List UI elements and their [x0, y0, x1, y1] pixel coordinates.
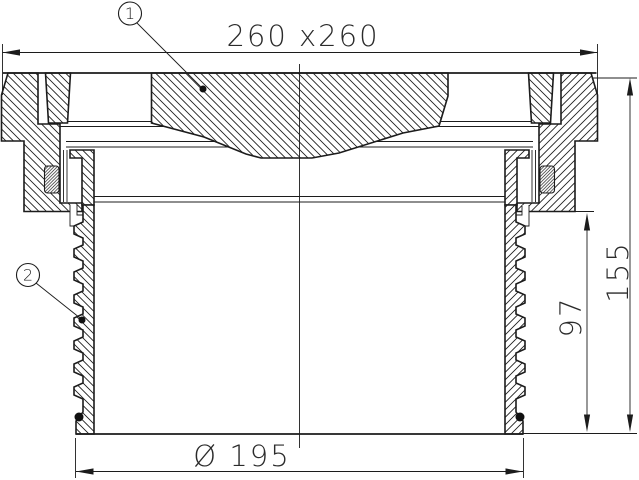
technical-drawing: 260 x260 155 97 Ø 195 1 2 [0, 0, 639, 480]
arrowhead-left [3, 49, 21, 55]
grate-bar-left [46, 73, 71, 123]
arrowhead-right [580, 49, 598, 55]
leader-dot [200, 86, 207, 93]
arrowhead-up [627, 78, 633, 96]
arrowhead-down [584, 415, 590, 433]
callout-1-label: 1 [125, 4, 135, 23]
drawing-canvas: 260 x260 155 97 Ø 195 1 2 [0, 0, 639, 480]
seal-right [540, 166, 555, 193]
arrowhead-down [627, 415, 633, 433]
arrowhead-left [76, 468, 94, 474]
seal-left [45, 166, 60, 193]
dim-width-label: 260 x260 [226, 19, 379, 53]
o-ring-right [516, 413, 525, 422]
dimension-spigot-height: 97 [554, 212, 594, 433]
arrowhead-right [506, 468, 524, 474]
leader-dot [79, 317, 86, 324]
arrowhead-up [584, 213, 590, 231]
grate-bar-right [529, 73, 554, 123]
spigot-collar-right [505, 150, 529, 205]
dim-total-height-label: 155 [601, 241, 635, 302]
o-ring-left [75, 413, 84, 422]
threaded-wall-right [505, 205, 525, 434]
dim-spigot-height-label: 97 [554, 297, 588, 338]
dim-diameter-label: Ø 195 [193, 439, 290, 473]
spigot-collar-left [70, 150, 94, 205]
callout-2-label: 2 [23, 266, 33, 285]
